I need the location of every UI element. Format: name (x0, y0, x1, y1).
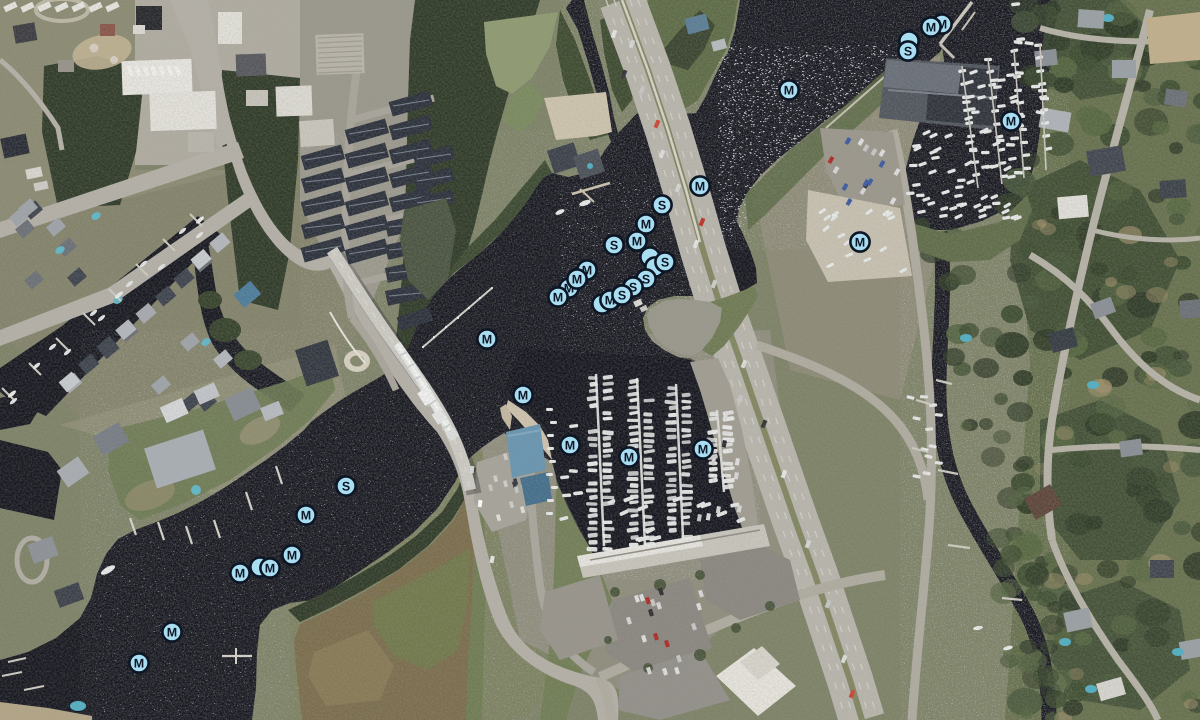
svg-text:S: S (661, 255, 669, 269)
svg-text:S: S (904, 44, 912, 58)
svg-text:M: M (134, 656, 144, 670)
svg-text:S: S (658, 198, 666, 212)
svg-text:M: M (553, 290, 563, 304)
svg-text:M: M (565, 438, 575, 452)
svg-text:S: S (342, 479, 350, 493)
svg-text:M: M (572, 272, 582, 286)
svg-text:M: M (301, 508, 311, 522)
svg-text:M: M (698, 442, 708, 456)
svg-text:M: M (695, 179, 705, 193)
svg-text:M: M (624, 450, 634, 464)
svg-text:M: M (1006, 114, 1016, 128)
svg-text:M: M (287, 548, 297, 562)
svg-text:M: M (855, 235, 865, 249)
svg-text:S: S (610, 238, 618, 252)
svg-text:M: M (641, 217, 651, 231)
svg-text:M: M (265, 561, 275, 575)
svg-text:M: M (926, 20, 936, 34)
svg-text:M: M (235, 566, 245, 580)
svg-text:M: M (167, 625, 177, 639)
svg-text:M: M (518, 388, 528, 402)
svg-text:M: M (482, 332, 492, 346)
svg-text:M: M (784, 83, 794, 97)
svg-text:M: M (632, 234, 642, 248)
svg-text:S: S (618, 288, 626, 302)
